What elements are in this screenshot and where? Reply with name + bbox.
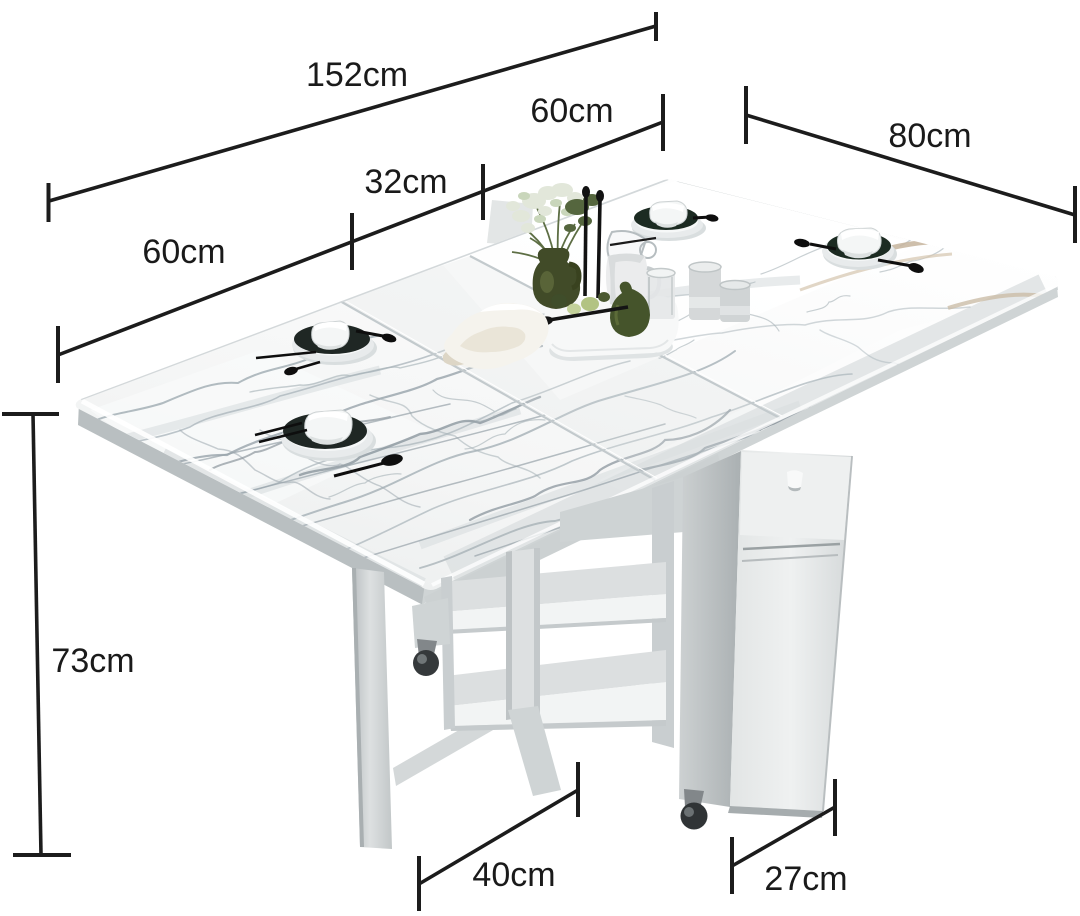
- svg-text:152cm: 152cm: [306, 56, 408, 94]
- svg-text:60cm: 60cm: [142, 233, 225, 271]
- svg-text:32cm: 32cm: [364, 163, 447, 201]
- svg-text:73cm: 73cm: [51, 642, 134, 680]
- svg-text:60cm: 60cm: [530, 92, 613, 130]
- svg-text:40cm: 40cm: [472, 856, 555, 894]
- svg-text:27cm: 27cm: [764, 860, 847, 898]
- svg-text:80cm: 80cm: [888, 117, 971, 155]
